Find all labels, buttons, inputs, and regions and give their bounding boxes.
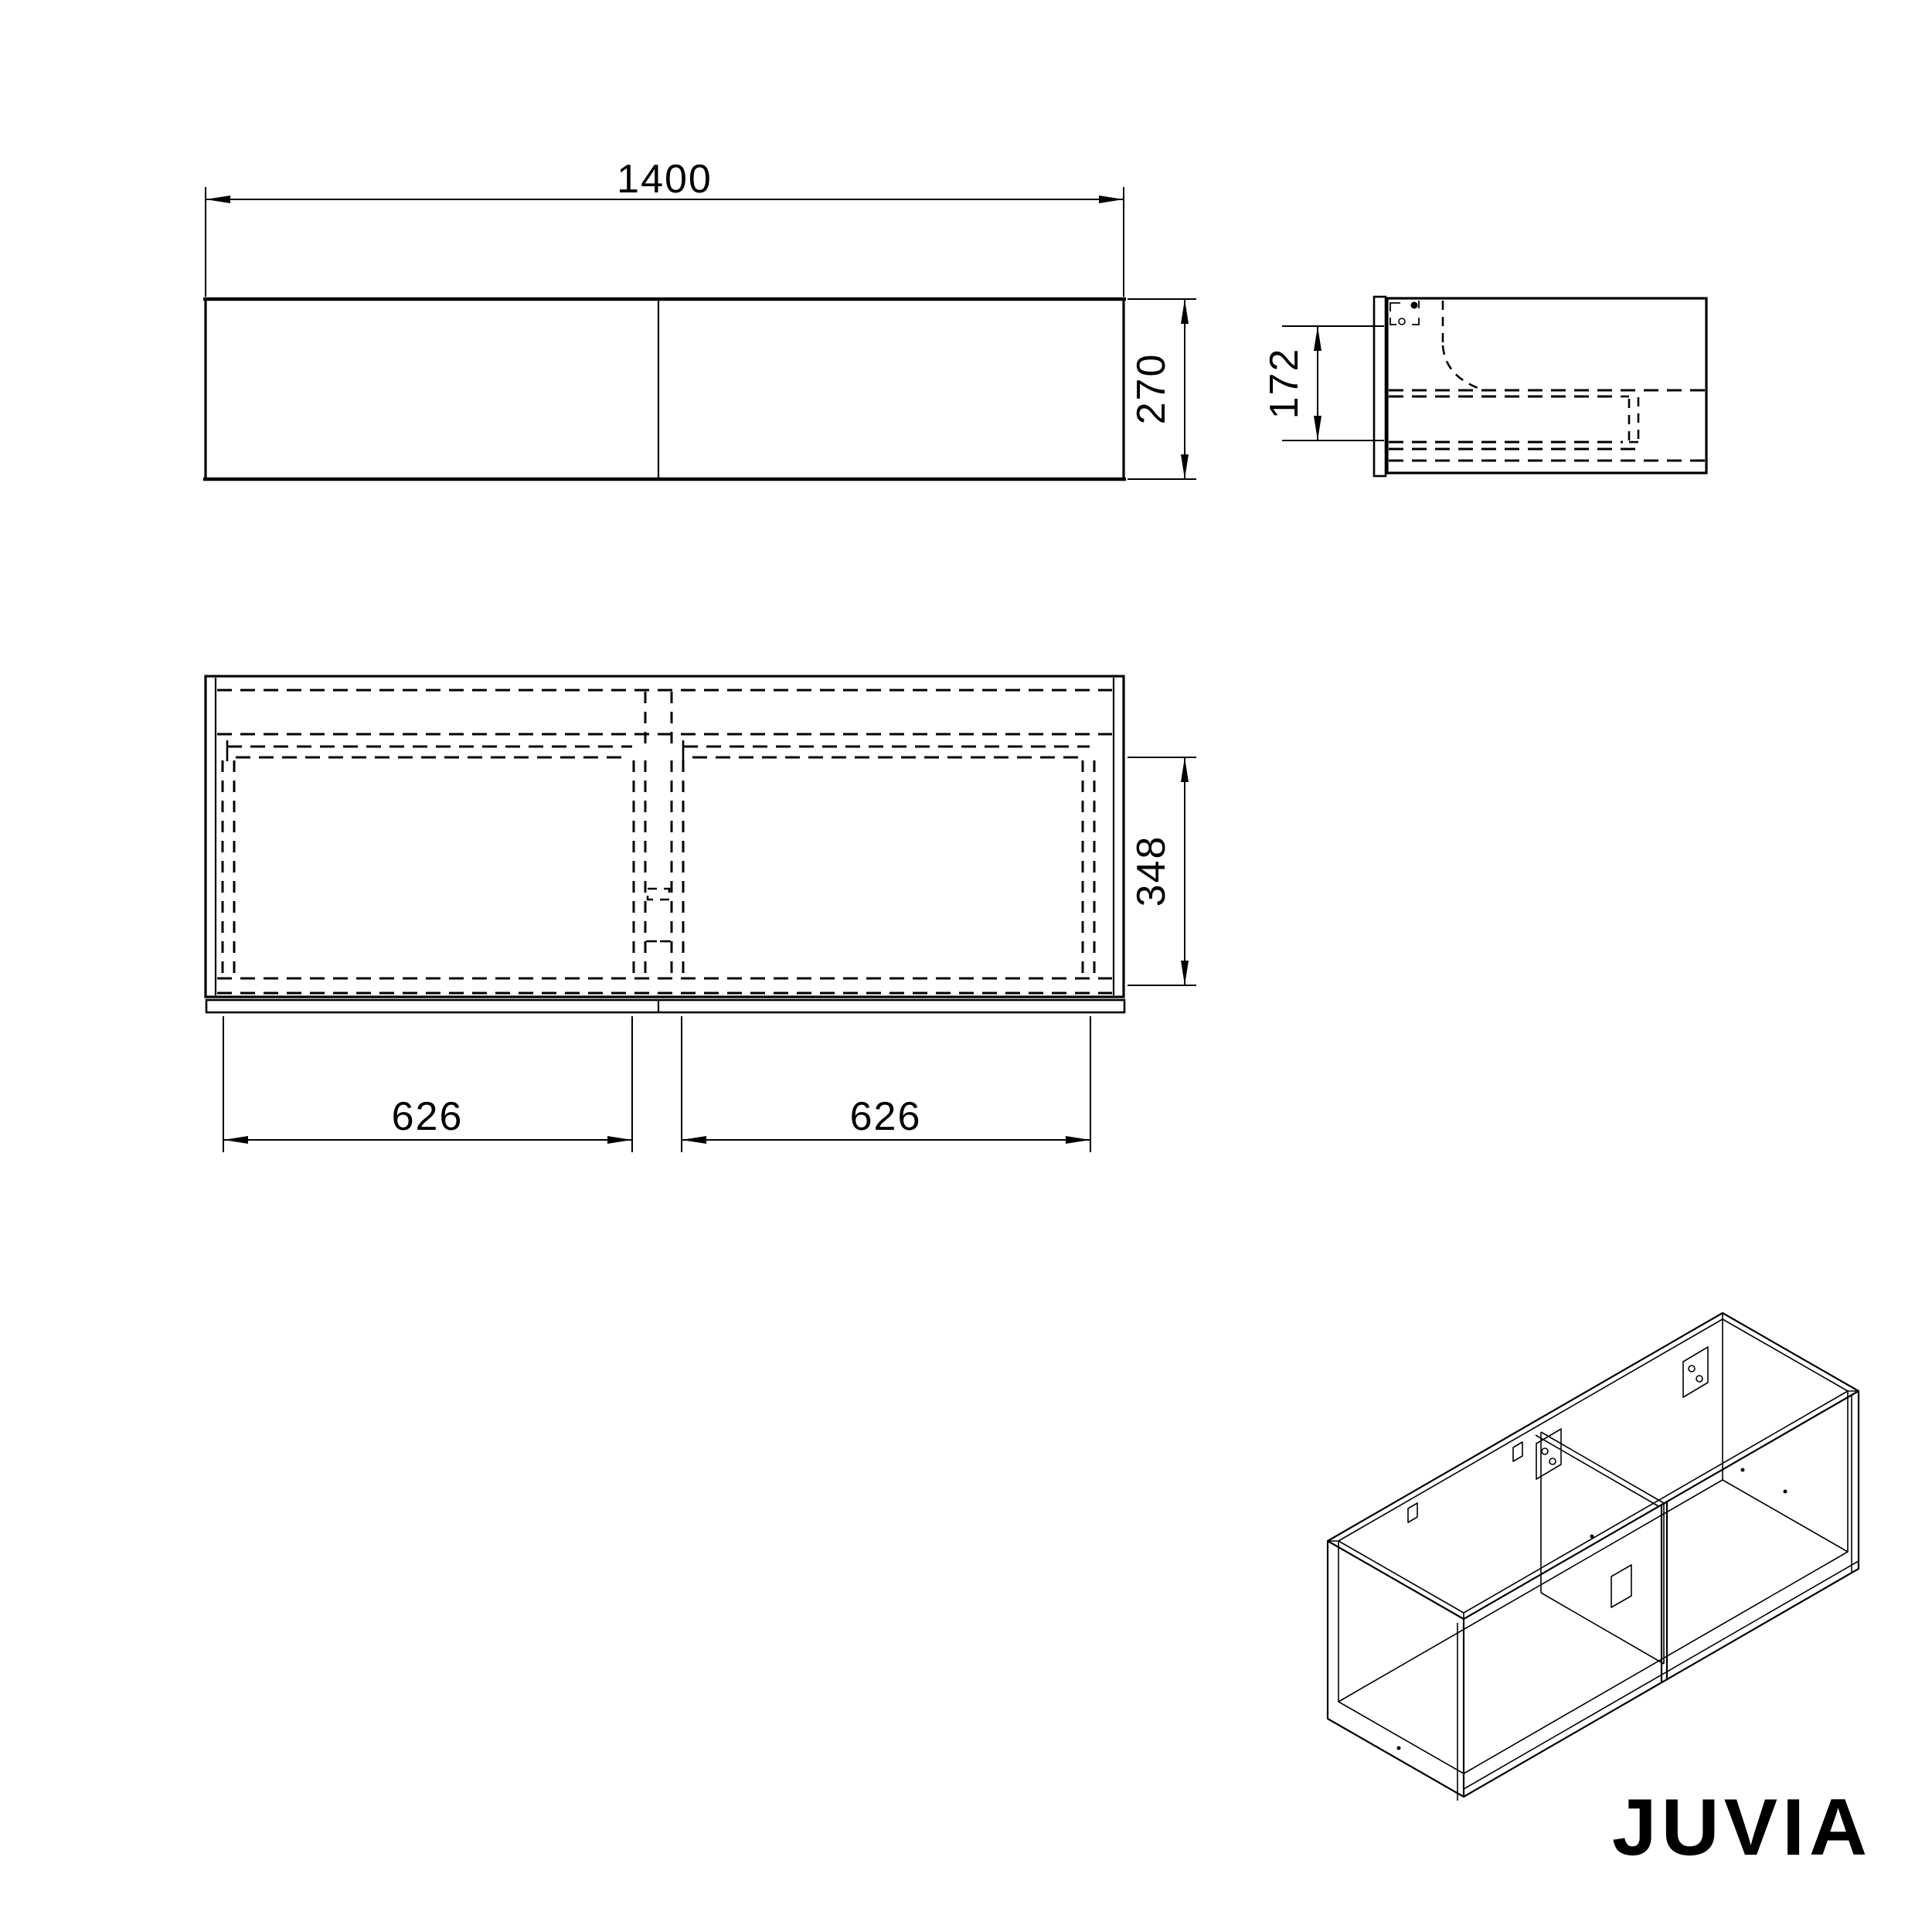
dimension-label-drawer-right: 626 xyxy=(850,1094,922,1139)
bracket-plate xyxy=(1683,1347,1708,1397)
fitting-bracket xyxy=(1412,318,1419,325)
plan-drawer-fronts xyxy=(206,1000,1124,1012)
iso-inner-corners xyxy=(1338,1319,1848,1702)
brand-logo: JUVIA xyxy=(1612,1783,1872,1872)
front-cabinet-outline xyxy=(206,299,1124,479)
iso-center-divider xyxy=(1536,1432,1664,1664)
bracket-plate xyxy=(1536,1429,1561,1479)
dimension-side-mount: 172 xyxy=(1262,326,1384,440)
isometric-view xyxy=(1328,1313,1859,1801)
dimension-label-front-height: 270 xyxy=(1129,353,1174,425)
dimension-label-front-width: 1400 xyxy=(617,157,713,202)
iso-mount-bracket-center xyxy=(1536,1429,1561,1479)
front-view: 1400 270 xyxy=(203,157,1196,479)
side-view: 172 xyxy=(1262,297,1706,476)
screw-dot xyxy=(1397,1747,1401,1750)
fitting-dot xyxy=(1411,302,1418,309)
screw-dot xyxy=(1784,1490,1787,1494)
iso-mount-bracket-right xyxy=(1683,1347,1708,1397)
iso-left-top-edge xyxy=(1328,1541,1464,1619)
dimension-front-height: 270 xyxy=(1128,299,1196,479)
side-cabinet-outline xyxy=(1387,298,1706,473)
iso-floor xyxy=(1338,1480,1848,1774)
plan-view: 348 626 626 xyxy=(206,676,1196,1152)
screw-dot xyxy=(1590,1535,1594,1539)
dimension-label-plan-depth: 348 xyxy=(1129,835,1174,907)
bracket-hole xyxy=(1549,1458,1556,1464)
fitting-bracket xyxy=(1390,303,1400,311)
fitting-symbols xyxy=(1390,301,1419,325)
technical-drawing-page: 1400 270 xyxy=(0,0,1932,1932)
fitting-hole xyxy=(1399,318,1405,325)
plan-cabinet-outline xyxy=(206,676,1124,997)
dimension-front-width: 1400 xyxy=(206,157,1124,297)
bracket-hole xyxy=(1542,1448,1548,1454)
dimension-label-side-mount: 172 xyxy=(1262,348,1307,420)
bracket-hole xyxy=(1696,1376,1702,1382)
vanity-technical-drawing: 1400 270 xyxy=(0,0,1932,1932)
dimension-drawer-right: 626 xyxy=(682,1016,1090,1152)
iso-inner-rim xyxy=(1338,1319,1848,1613)
iso-rim-thickness xyxy=(1328,1313,1859,1619)
screw-dot xyxy=(1741,1468,1745,1472)
dimension-plan-depth: 348 xyxy=(1128,757,1196,985)
iso-rail-tab xyxy=(1408,1503,1417,1522)
hidden-center-connector xyxy=(648,889,669,900)
dimension-label-drawer-left: 626 xyxy=(392,1094,464,1139)
fitting-bracket xyxy=(1390,318,1396,325)
side-back-panel xyxy=(1374,297,1386,476)
dimension-drawer-left: 626 xyxy=(223,1016,632,1152)
iso-upstand-block xyxy=(1611,1565,1631,1607)
hidden-basin-curve xyxy=(1443,345,1485,390)
bracket-hole xyxy=(1689,1366,1695,1372)
iso-rail-tab xyxy=(1513,1442,1522,1461)
